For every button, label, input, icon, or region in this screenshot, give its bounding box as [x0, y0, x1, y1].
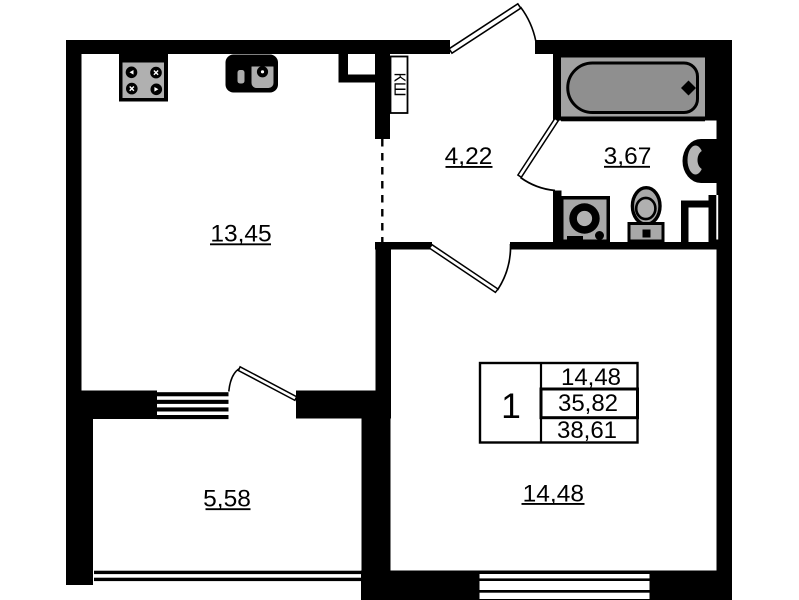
svg-text:3,67: 3,67 [604, 143, 652, 170]
svg-text:35,82: 35,82 [558, 390, 618, 417]
svg-text:38,61: 38,61 [557, 417, 617, 444]
svg-text:14,48: 14,48 [561, 364, 621, 391]
svg-text:КШ: КШ [391, 73, 408, 97]
svg-text:1: 1 [501, 386, 521, 426]
